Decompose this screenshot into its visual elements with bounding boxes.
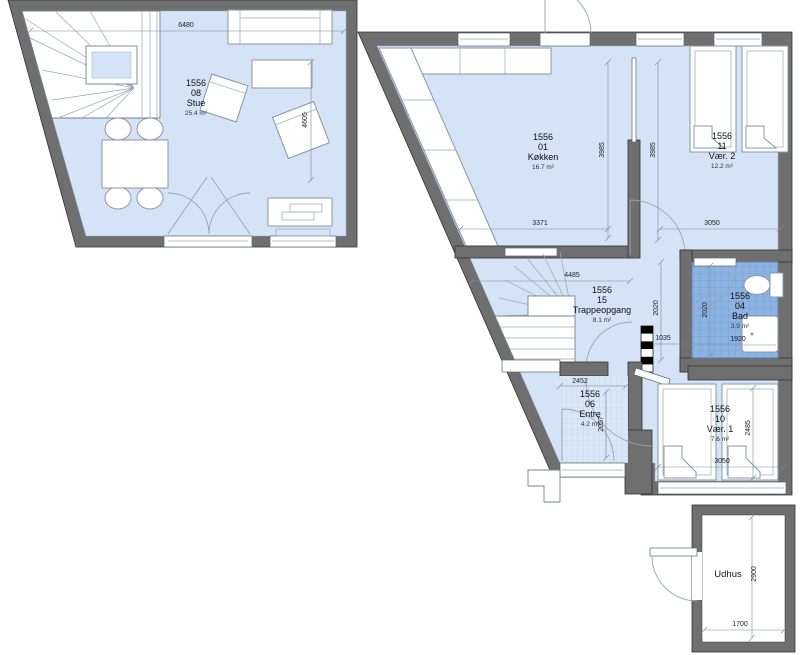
room-id: 1556 — [710, 404, 730, 414]
sofa — [228, 10, 332, 44]
room-number: 04 — [735, 301, 745, 311]
room-number: 08 — [191, 88, 201, 98]
dim: 1035 — [655, 335, 671, 342]
room-number: 01 — [538, 142, 548, 152]
room-id: 1556 — [533, 132, 553, 142]
room-area: 7.6 m² — [711, 436, 730, 443]
dim: 3050 — [704, 220, 720, 227]
entrance-step — [528, 470, 560, 502]
chair — [137, 118, 163, 140]
vaer2-label: 1556 11 Vær. 2 12.2 m² — [709, 131, 736, 170]
room-name: Køkken — [528, 152, 559, 162]
dim: 2020 — [702, 302, 709, 318]
room-area: 3.9 m² — [731, 323, 750, 330]
dim: 2900 — [751, 566, 758, 582]
top-entry-door — [540, 0, 591, 46]
dim-stue-depth: 4605 — [302, 112, 309, 128]
room-name: Bad — [732, 311, 748, 321]
dim: 3985 — [599, 142, 606, 158]
udhus-label: Udhus — [714, 569, 742, 580]
dim-stue-width: 6480 — [178, 22, 194, 29]
dim: 4485 — [564, 272, 580, 279]
stair-landing — [528, 296, 575, 316]
udhus-door-leaf — [650, 548, 697, 556]
room-name: Entre — [579, 409, 601, 419]
dining-table — [102, 140, 168, 188]
room-name: Vær. 1 — [707, 424, 734, 434]
room-id: 1556 — [730, 291, 750, 301]
room-area: 4.2 m² — [581, 421, 600, 428]
room-area: 12.2 m² — [711, 163, 734, 170]
dim: 2485 — [745, 420, 752, 436]
wall-pier — [625, 430, 652, 494]
room-id: 1556 — [580, 389, 600, 399]
coffee-table — [252, 60, 312, 88]
inner-glass — [505, 248, 557, 256]
bad-label: 1556 04 Bad 3.9 m² — [730, 291, 750, 330]
railing — [502, 360, 560, 372]
dim: 2452 — [572, 378, 588, 385]
room-area: 25.4 m² — [185, 110, 208, 117]
room-id: 1556 — [712, 131, 732, 141]
room-area: 16.7 m² — [532, 164, 555, 171]
floor-plan-drawing: 6480 4605 1556 08 Stue 25.4 m² — [0, 0, 800, 655]
entre-label: 1556 06 Entre 4.2 m² — [579, 389, 601, 428]
room-name: Trappeopgang — [573, 305, 631, 315]
room-area: 8.1 m² — [593, 317, 612, 324]
room-number: 15 — [597, 295, 607, 305]
dim: 3371 — [532, 220, 548, 227]
sink-icon — [742, 316, 778, 352]
udhus-door-opening — [692, 552, 702, 600]
dim: 3985 — [650, 142, 657, 158]
room-number: 11 — [717, 141, 726, 151]
udhus-unit: 2900 1700 Udhus — [650, 505, 795, 652]
section-marker — [641, 326, 653, 372]
room-id: 1556 — [592, 285, 612, 295]
glass-partition — [632, 58, 636, 142]
room-name: Vær. 2 — [709, 151, 736, 161]
bad-door-leaf — [694, 258, 736, 266]
stue-unit: 6480 4605 1556 08 Stue 25.4 m² — [8, 0, 357, 247]
dim: 1700 — [732, 621, 748, 628]
stue-label: 1556 08 Stue 25.4 m² — [185, 78, 208, 117]
main-unit: 3985 3985 3371 3050 4485 2020 1035 2020 … — [358, 0, 792, 502]
chair — [105, 118, 131, 140]
floor-plan: 6480 4605 1556 08 Stue 25.4 m² — [0, 0, 800, 655]
room-number: 06 — [585, 399, 595, 409]
chair — [105, 187, 131, 209]
udhus-door-arc — [652, 556, 697, 601]
room-number: 10 — [715, 414, 725, 424]
dim: 1920 — [730, 336, 746, 343]
tv-bench — [268, 198, 332, 226]
chair — [137, 187, 163, 209]
dim: 2020 — [653, 300, 660, 316]
room-name: Stue — [187, 98, 206, 108]
dim: 3050 — [714, 458, 730, 465]
room-id: 1556 — [186, 78, 206, 88]
